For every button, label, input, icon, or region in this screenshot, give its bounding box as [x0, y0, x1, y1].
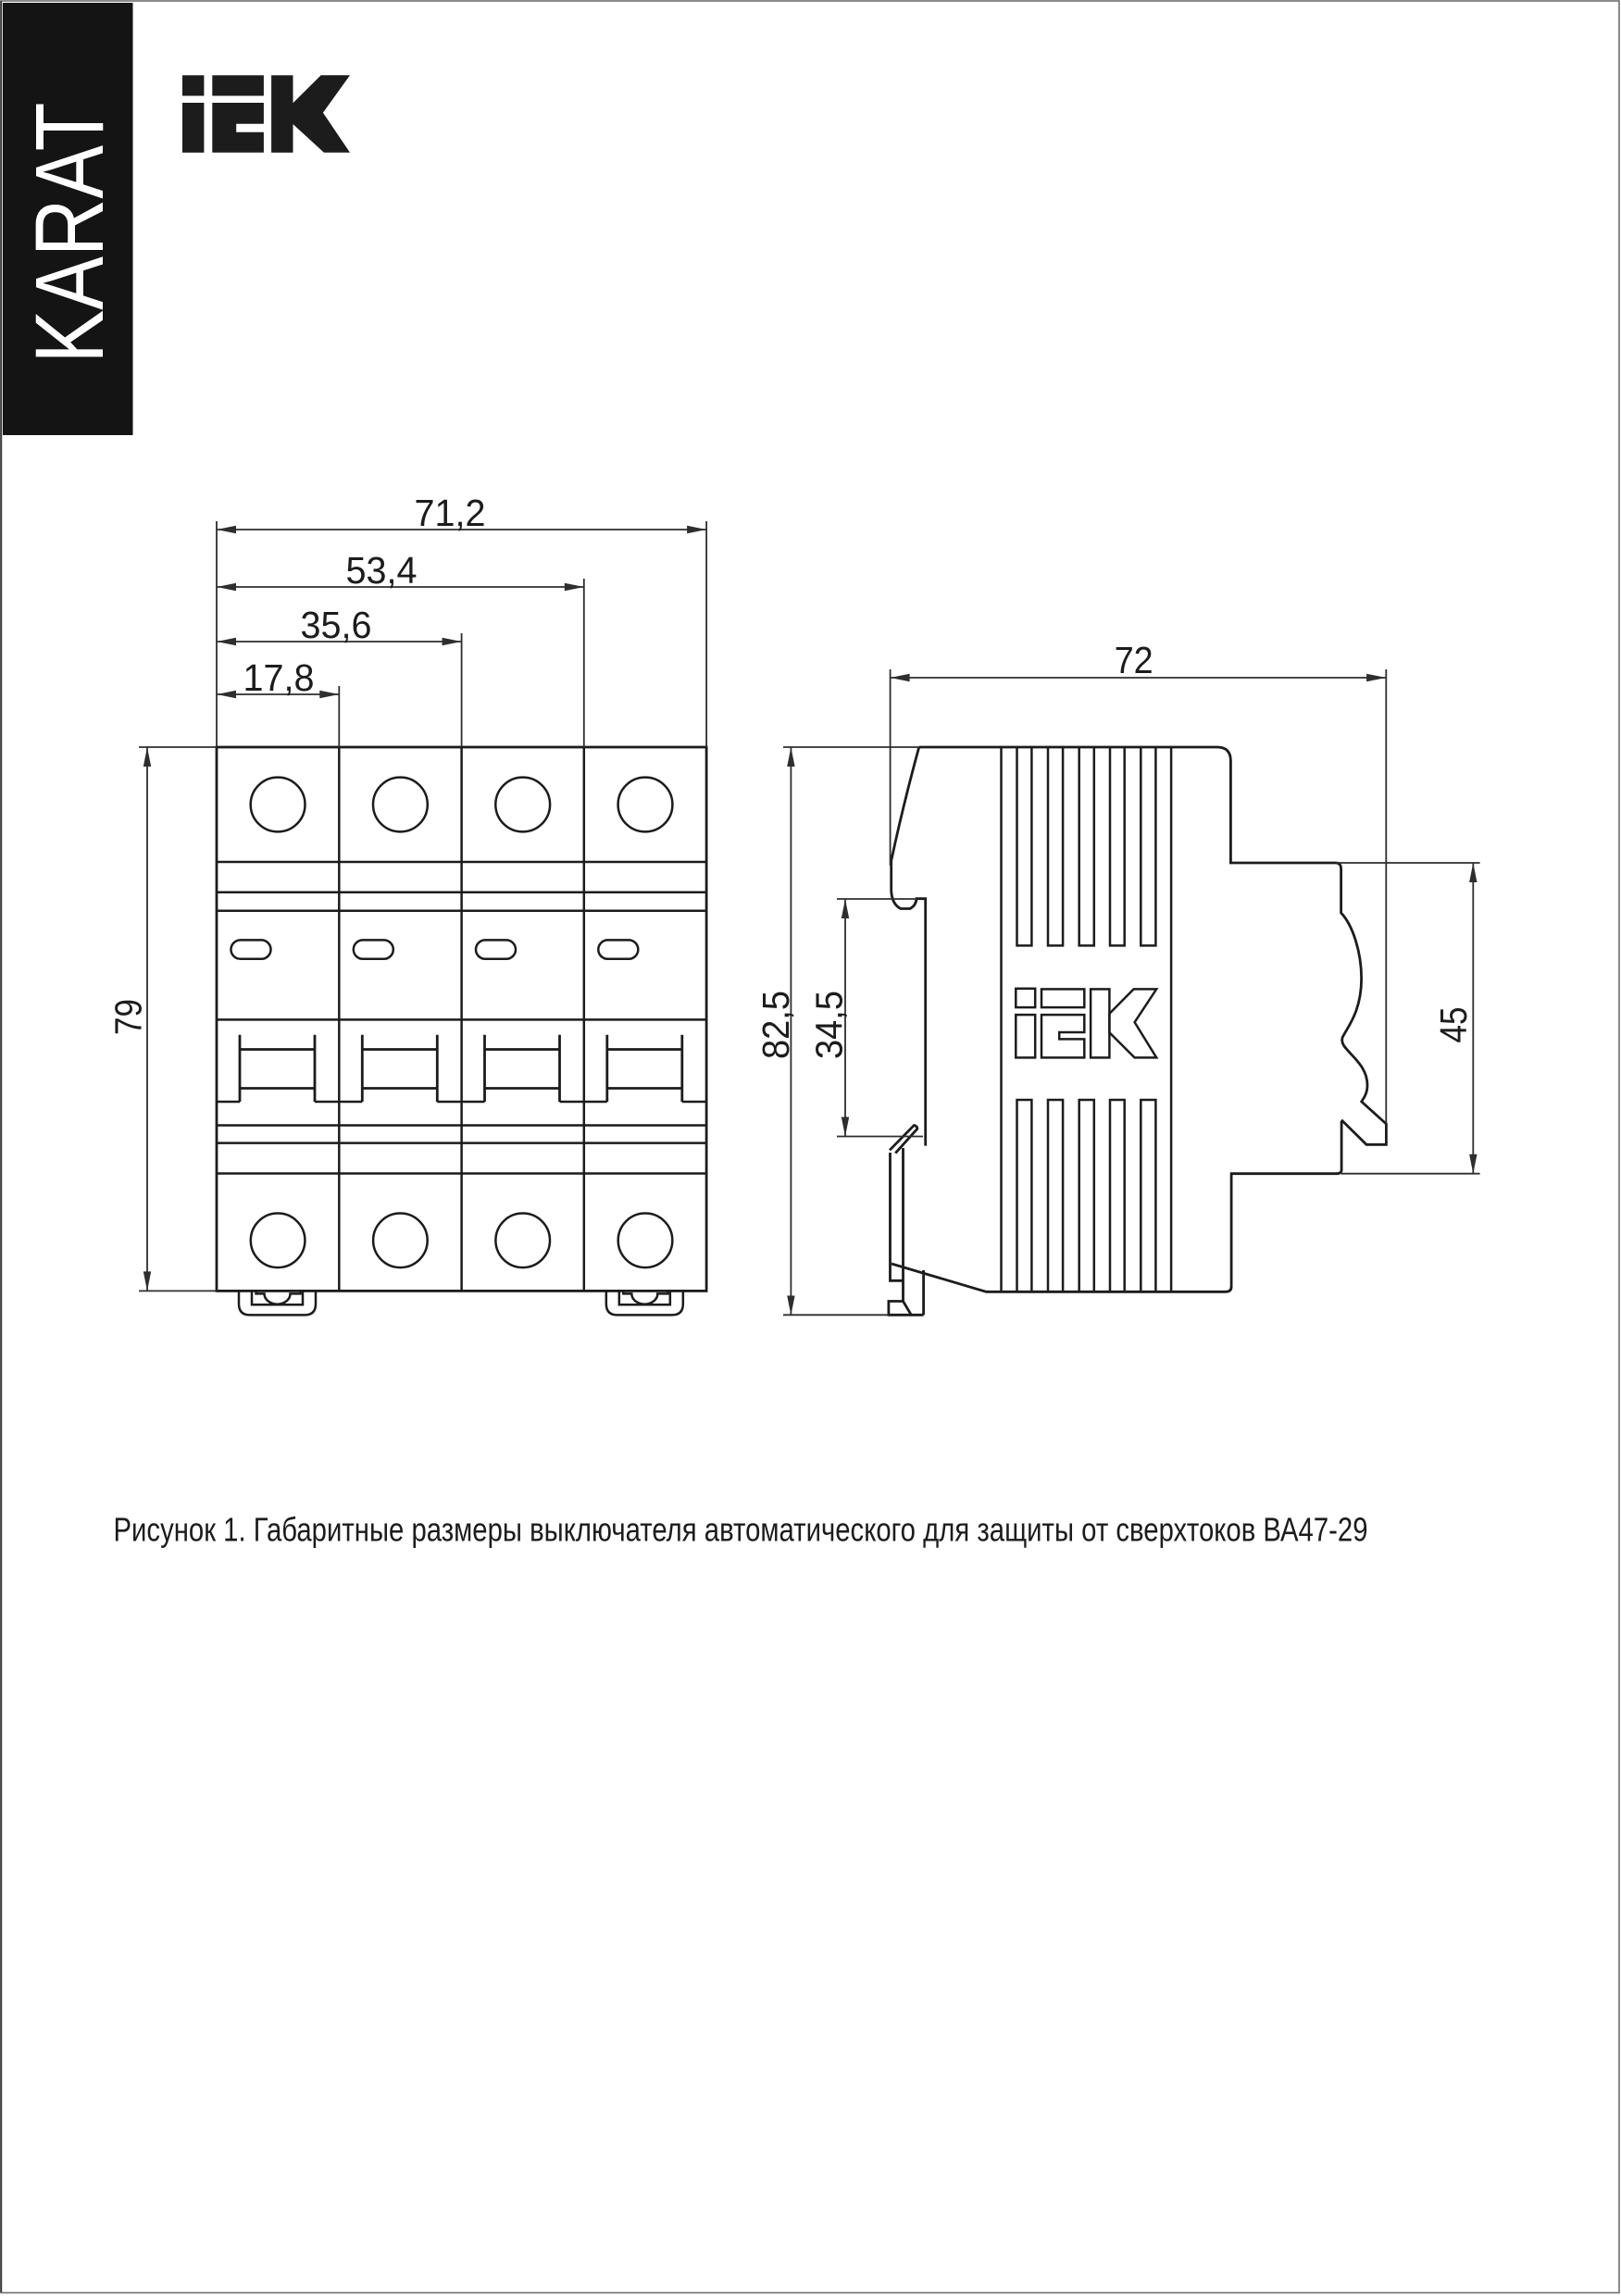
svg-text:71,2: 71,2	[415, 492, 486, 534]
svg-text:17,8: 17,8	[243, 656, 315, 699]
svg-text:72: 72	[1115, 639, 1153, 681]
svg-text:34,5: 34,5	[808, 991, 851, 1059]
svg-text:35,6: 35,6	[301, 604, 372, 646]
svg-text:Рисунок 1. Габаритные размеры: Рисунок 1. Габаритные размеры выключател…	[114, 1511, 1368, 1549]
svg-text:45: 45	[1432, 1007, 1475, 1043]
svg-text:82,5: 82,5	[754, 991, 797, 1059]
svg-text:KARAT: KARAT	[16, 103, 124, 364]
svg-text:79: 79	[107, 999, 150, 1035]
svg-text:53,4: 53,4	[346, 549, 418, 592]
